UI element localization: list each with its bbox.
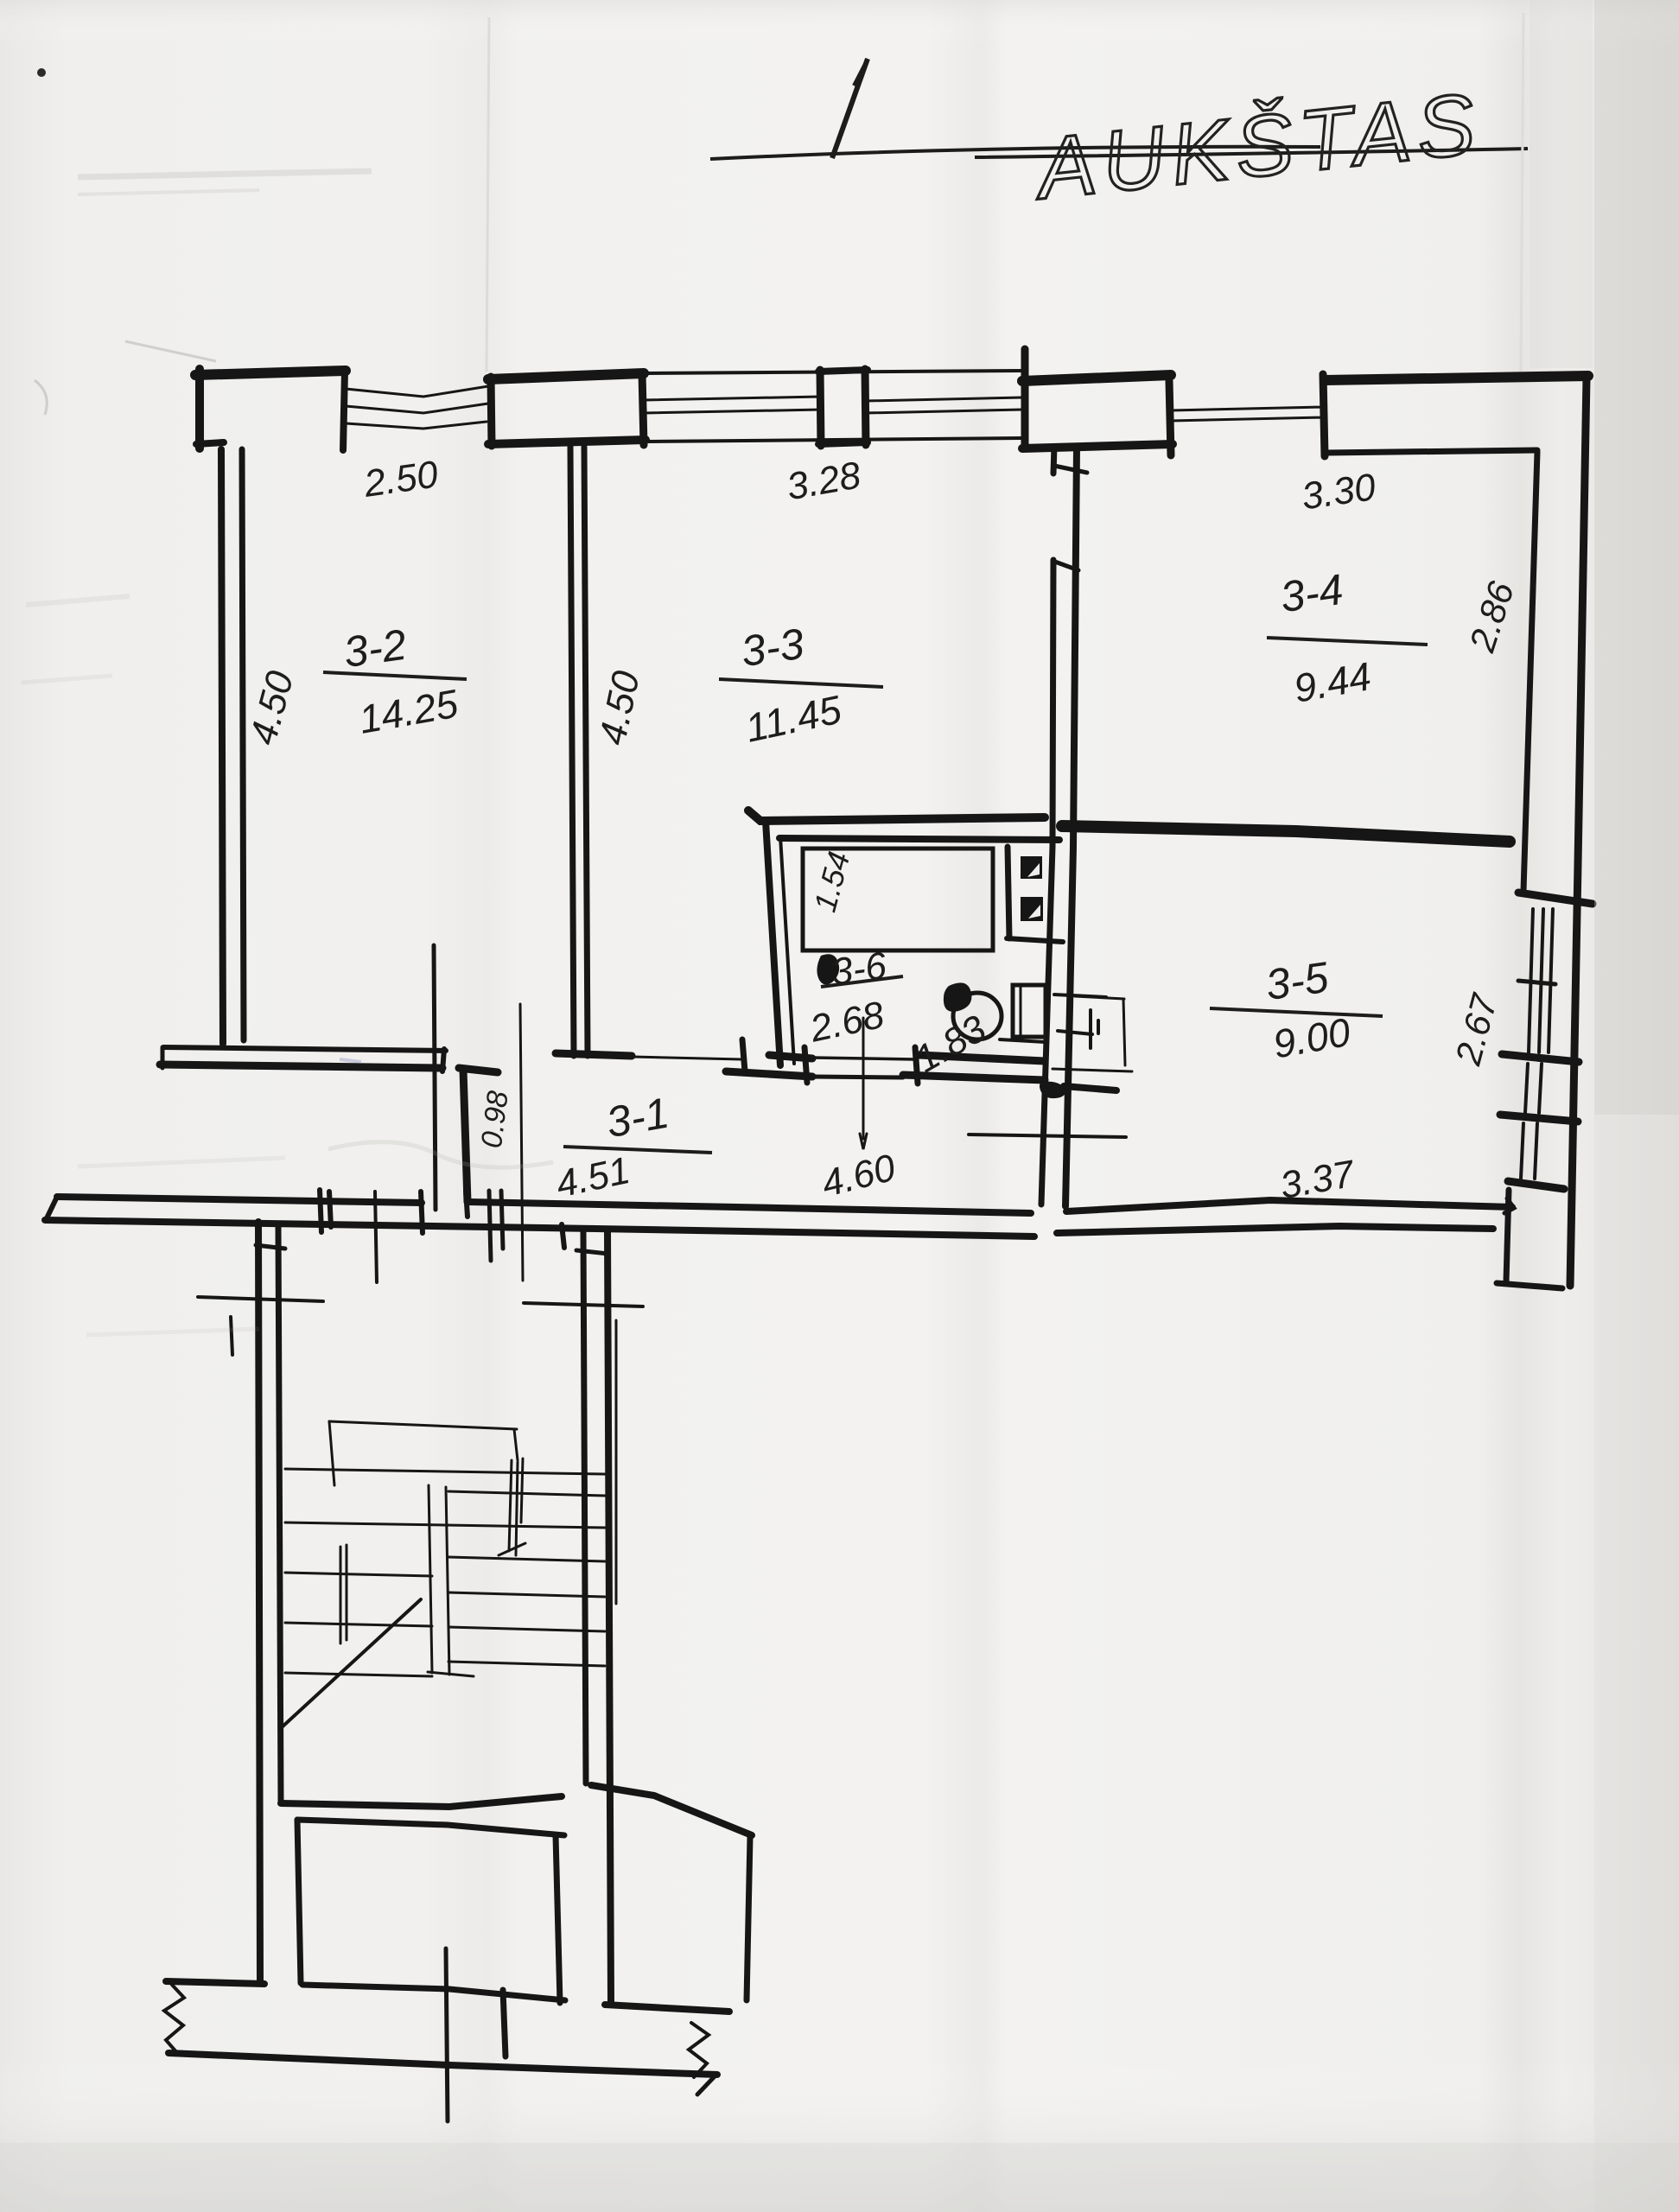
svg-text:3-6: 3-6: [829, 944, 889, 994]
svg-text:3-3: 3-3: [738, 620, 807, 677]
svg-text:3-5: 3-5: [1262, 953, 1332, 1010]
svg-text:3-4: 3-4: [1277, 565, 1345, 622]
svg-text:0.98: 0.98: [475, 1089, 515, 1149]
svg-text:3-2: 3-2: [340, 620, 410, 677]
